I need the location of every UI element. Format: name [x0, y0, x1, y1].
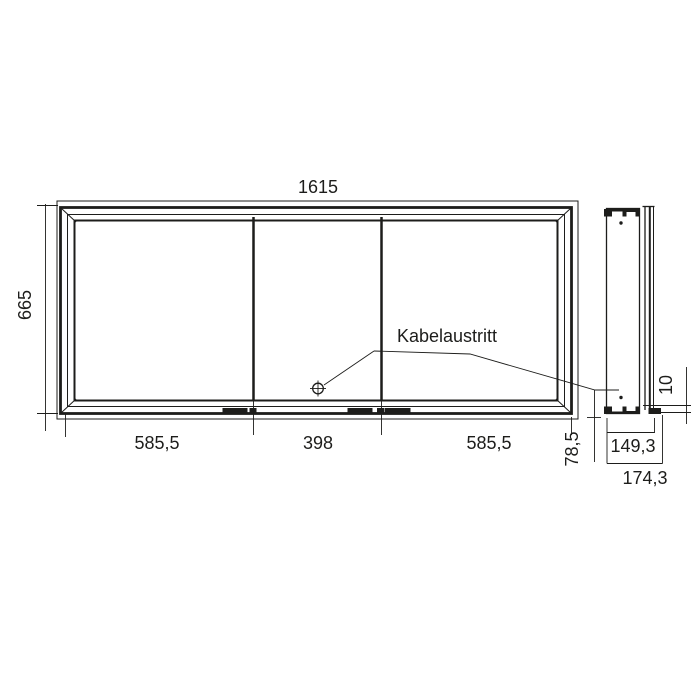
- side-handle-profile: [649, 408, 662, 414]
- front-frame-outer: [61, 208, 572, 414]
- side-door-panel: [643, 207, 655, 414]
- handle-strip: [377, 408, 384, 414]
- dim-cable-outlet-height: 78,5: [562, 390, 601, 467]
- front-frame-inner: [75, 221, 558, 401]
- dim-inner-depth: 149,3: [607, 418, 656, 464]
- dim-cable-outlet-height-label: 78,5: [562, 431, 582, 466]
- side-view: [604, 207, 661, 415]
- technical-drawing: 1615 665 585,5 398 585,5 Kabelaustritt: [0, 0, 700, 700]
- technical-drawing-page: 1615 665 585,5 398 585,5 Kabelaustritt: [0, 0, 700, 700]
- cable-outlet-label: Kabelaustritt: [397, 326, 497, 346]
- side-mount-rail-top: [604, 209, 640, 217]
- front-outer-silhouette: [57, 201, 578, 419]
- side-dimensions: 10 78,5 149,3 174,3: [562, 367, 691, 488]
- dim-overall-depth-label: 174,3: [622, 468, 667, 488]
- dim-overall-height: 665: [15, 204, 58, 431]
- cable-outlet-symbol: [310, 381, 326, 397]
- dim-bottom-segments: 585,5 398 585,5: [66, 401, 572, 453]
- leader-to-front-outlet: [324, 351, 374, 385]
- side-mount-rail-bottom: [604, 406, 640, 414]
- front-corner-miters: [61, 208, 571, 413]
- dim-segment-left-label: 585,5: [134, 433, 179, 453]
- front-dimensions: 1615 665 585,5 398 585,5: [15, 177, 572, 453]
- dim-overall-height-label: 665: [15, 290, 35, 320]
- handle-strip: [223, 408, 248, 414]
- side-body: [607, 209, 640, 414]
- cable-outlet-annotation: Kabelaustritt: [324, 326, 619, 390]
- front-frame-mid: [68, 215, 565, 407]
- dim-segment-right-label: 585,5: [466, 433, 511, 453]
- dim-inner-depth-label: 149,3: [610, 436, 655, 456]
- handle-strip: [348, 408, 373, 414]
- leader-to-side-outlet: [374, 351, 619, 390]
- dim-front-overhang-label: 10: [656, 375, 676, 395]
- side-screw-bottom: [619, 396, 622, 399]
- handle-strip: [385, 408, 411, 414]
- front-view: [57, 201, 578, 419]
- handle-strip: [250, 408, 257, 414]
- dim-segment-middle-label: 398: [303, 433, 333, 453]
- side-screw-top: [619, 221, 622, 224]
- dim-overall-width-label: 1615: [298, 177, 338, 197]
